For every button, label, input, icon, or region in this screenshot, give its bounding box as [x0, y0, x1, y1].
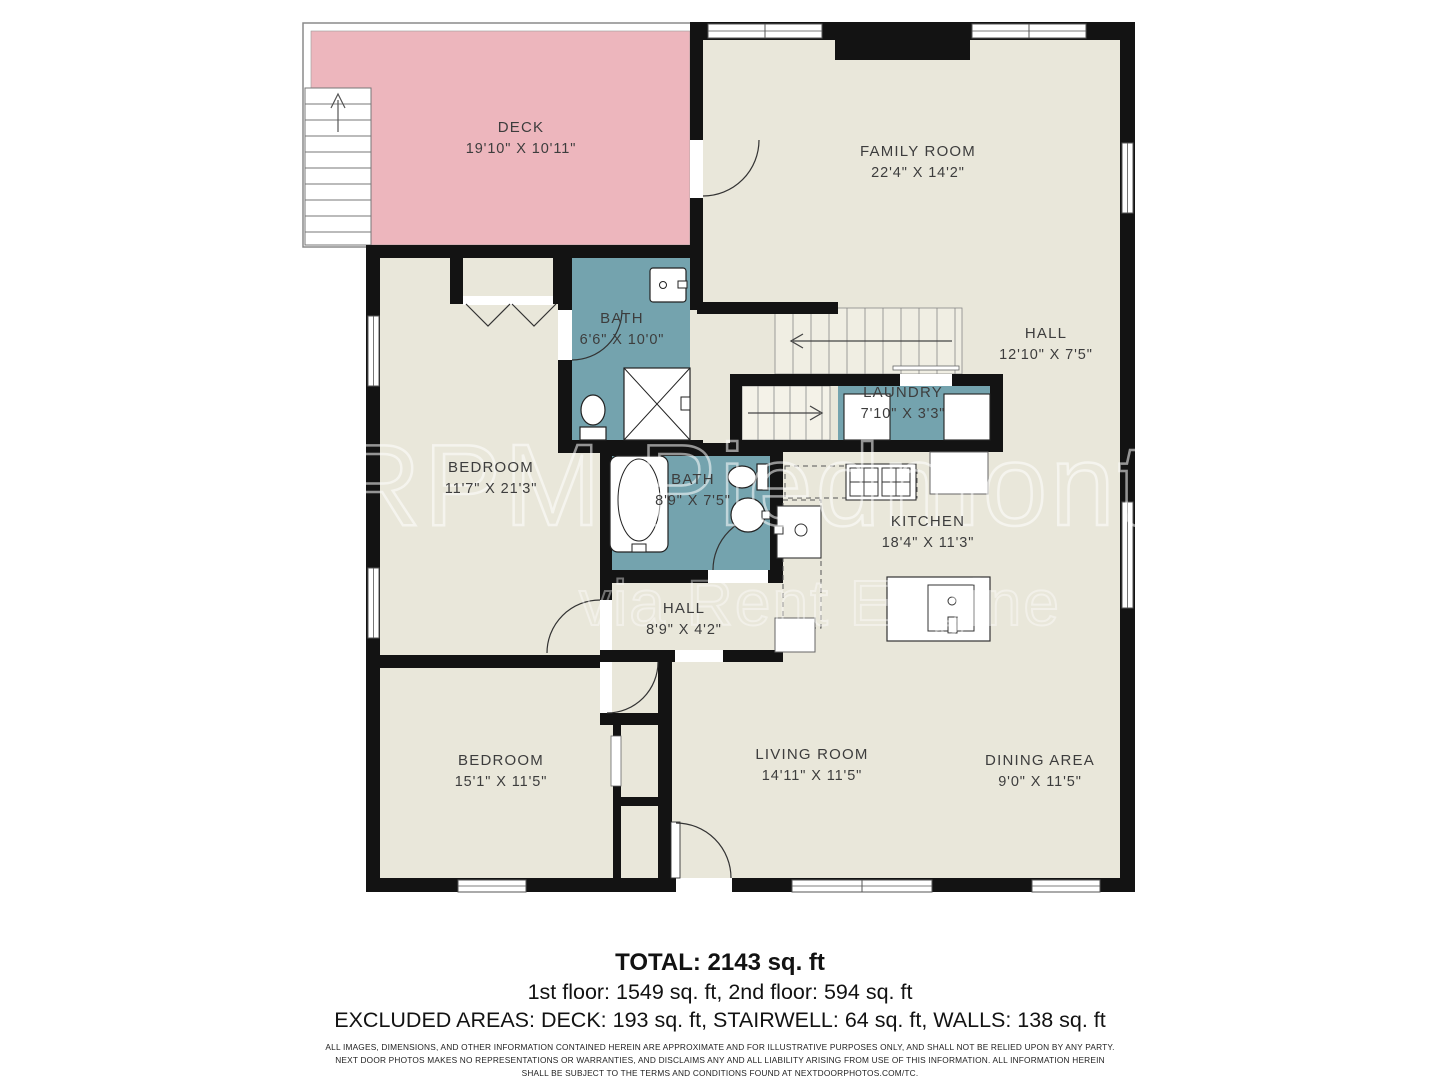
room-label-laundry: LAUNDRY7'10" X 3'3": [861, 384, 946, 422]
closet-slider-door: [611, 736, 621, 786]
room-dimensions: 18'4" X 11'3": [882, 535, 975, 551]
sink: [731, 498, 765, 532]
room-label-bath-upper: BATH6'6" X 10'0": [580, 310, 665, 348]
dishwasher: [775, 618, 815, 652]
room-name: BATH: [655, 471, 731, 488]
room-name: BEDROOM: [445, 459, 538, 476]
front-door-leaf: [671, 822, 680, 878]
excluded-areas: EXCLUDED AREAS: DECK: 193 sq. ft, STAIRW…: [0, 1008, 1440, 1033]
room-name: DECK: [466, 119, 577, 136]
room-name: HALL: [999, 325, 1093, 342]
laundry-slider-door: [893, 366, 959, 370]
room-name: FAMILY ROOM: [860, 143, 976, 160]
room-dimensions: 11'7" X 21'3": [445, 481, 538, 497]
room-label-deck: DECK19'10" X 10'11": [466, 119, 577, 157]
room-label-hall-upper: HALL12'10" X 7'5": [999, 325, 1093, 363]
room-dimensions: 6'6" X 10'0": [580, 332, 665, 348]
dryer: [944, 394, 990, 440]
room-dimensions: 15'1" X 11'5": [455, 774, 548, 790]
room-dimensions: 14'11" X 11'5": [755, 768, 868, 784]
room-label-family-room: FAMILY ROOM22'4" X 14'2": [860, 143, 976, 181]
room-name: LIVING ROOM: [755, 746, 868, 763]
deck-stairs: [305, 88, 371, 245]
floor-plan-drawing: [0, 0, 1440, 1080]
toilet: [728, 466, 756, 488]
room-dimensions: 8'9" X 4'2": [646, 622, 722, 638]
floor-areas: 1st floor: 1549 sq. ft, 2nd floor: 594 s…: [0, 980, 1440, 1005]
disclaimer-line: NEXT DOOR PHOTOS MAKES NO REPRESENTATION…: [0, 1054, 1440, 1067]
refrigerator: [930, 452, 988, 494]
room-name: KITCHEN: [882, 513, 975, 530]
room-name: HALL: [646, 600, 722, 617]
room-dimensions: 19'10" X 10'11": [466, 141, 577, 157]
room-name: LAUNDRY: [861, 384, 946, 401]
room-name: BATH: [580, 310, 665, 327]
room-label-bedroom-2: BEDROOM15'1" X 11'5": [455, 752, 548, 790]
room-label-hall-lower: HALL8'9" X 4'2": [646, 600, 722, 638]
total-area: TOTAL: 2143 sq. ft: [0, 949, 1440, 977]
room-name: BEDROOM: [455, 752, 548, 769]
floor-plan-page: RPM Piedmont via Rent Engine DECK19'10" …: [0, 0, 1440, 1080]
room-label-kitchen: KITCHEN18'4" X 11'3": [882, 513, 975, 551]
toilet: [581, 395, 605, 425]
disclaimer-line: SHALL BE SUBJECT TO THE TERMS AND CONDIT…: [0, 1067, 1440, 1080]
room-label-dining-area: DINING AREA9'0" X 11'5": [985, 752, 1095, 790]
disclaimer: ALL IMAGES, DIMENSIONS, AND OTHER INFORM…: [0, 1041, 1440, 1080]
room-label-living-room: LIVING ROOM14'11" X 11'5": [755, 746, 868, 784]
room-label-bedroom-1: BEDROOM11'7" X 21'3": [445, 459, 538, 497]
disclaimer-line: ALL IMAGES, DIMENSIONS, AND OTHER INFORM…: [0, 1041, 1440, 1054]
room-name: DINING AREA: [985, 752, 1095, 769]
room-dimensions: 7'10" X 3'3": [861, 406, 946, 422]
room-dimensions: 8'9" X 7'5": [655, 493, 731, 509]
room-dimensions: 22'4" X 14'2": [860, 165, 976, 181]
room-dimensions: 9'0" X 11'5": [985, 774, 1095, 790]
area-summary: TOTAL: 2143 sq. ft 1st floor: 1549 sq. f…: [0, 949, 1440, 1080]
room-dimensions: 12'10" X 7'5": [999, 347, 1093, 363]
room-label-bath-main: BATH8'9" X 7'5": [655, 471, 731, 509]
